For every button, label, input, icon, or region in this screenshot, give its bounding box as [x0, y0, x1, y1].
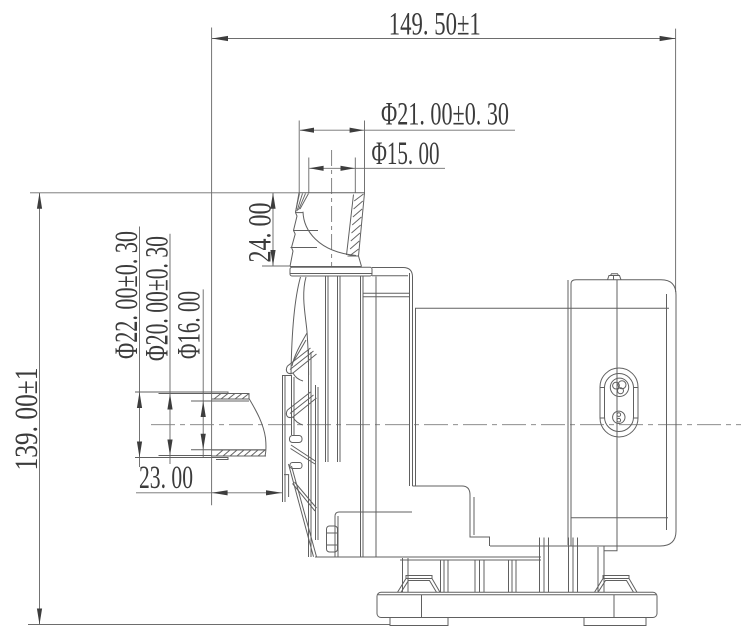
svg-text:24. 00: 24. 00 [243, 203, 279, 263]
svg-text:Φ21. 00±0. 30: Φ21. 00±0. 30 [381, 97, 509, 133]
svg-text:Φ15. 00: Φ15. 00 [372, 136, 440, 172]
svg-text:23. 00: 23. 00 [139, 460, 193, 496]
svg-text:139. 00±1: 139. 00±1 [9, 368, 45, 471]
svg-text:Φ16. 00: Φ16. 00 [172, 291, 208, 359]
svg-text:Φ20. 00±0. 30: Φ20. 00±0. 30 [140, 236, 176, 361]
svg-text:149. 50±1: 149. 50±1 [389, 7, 481, 43]
